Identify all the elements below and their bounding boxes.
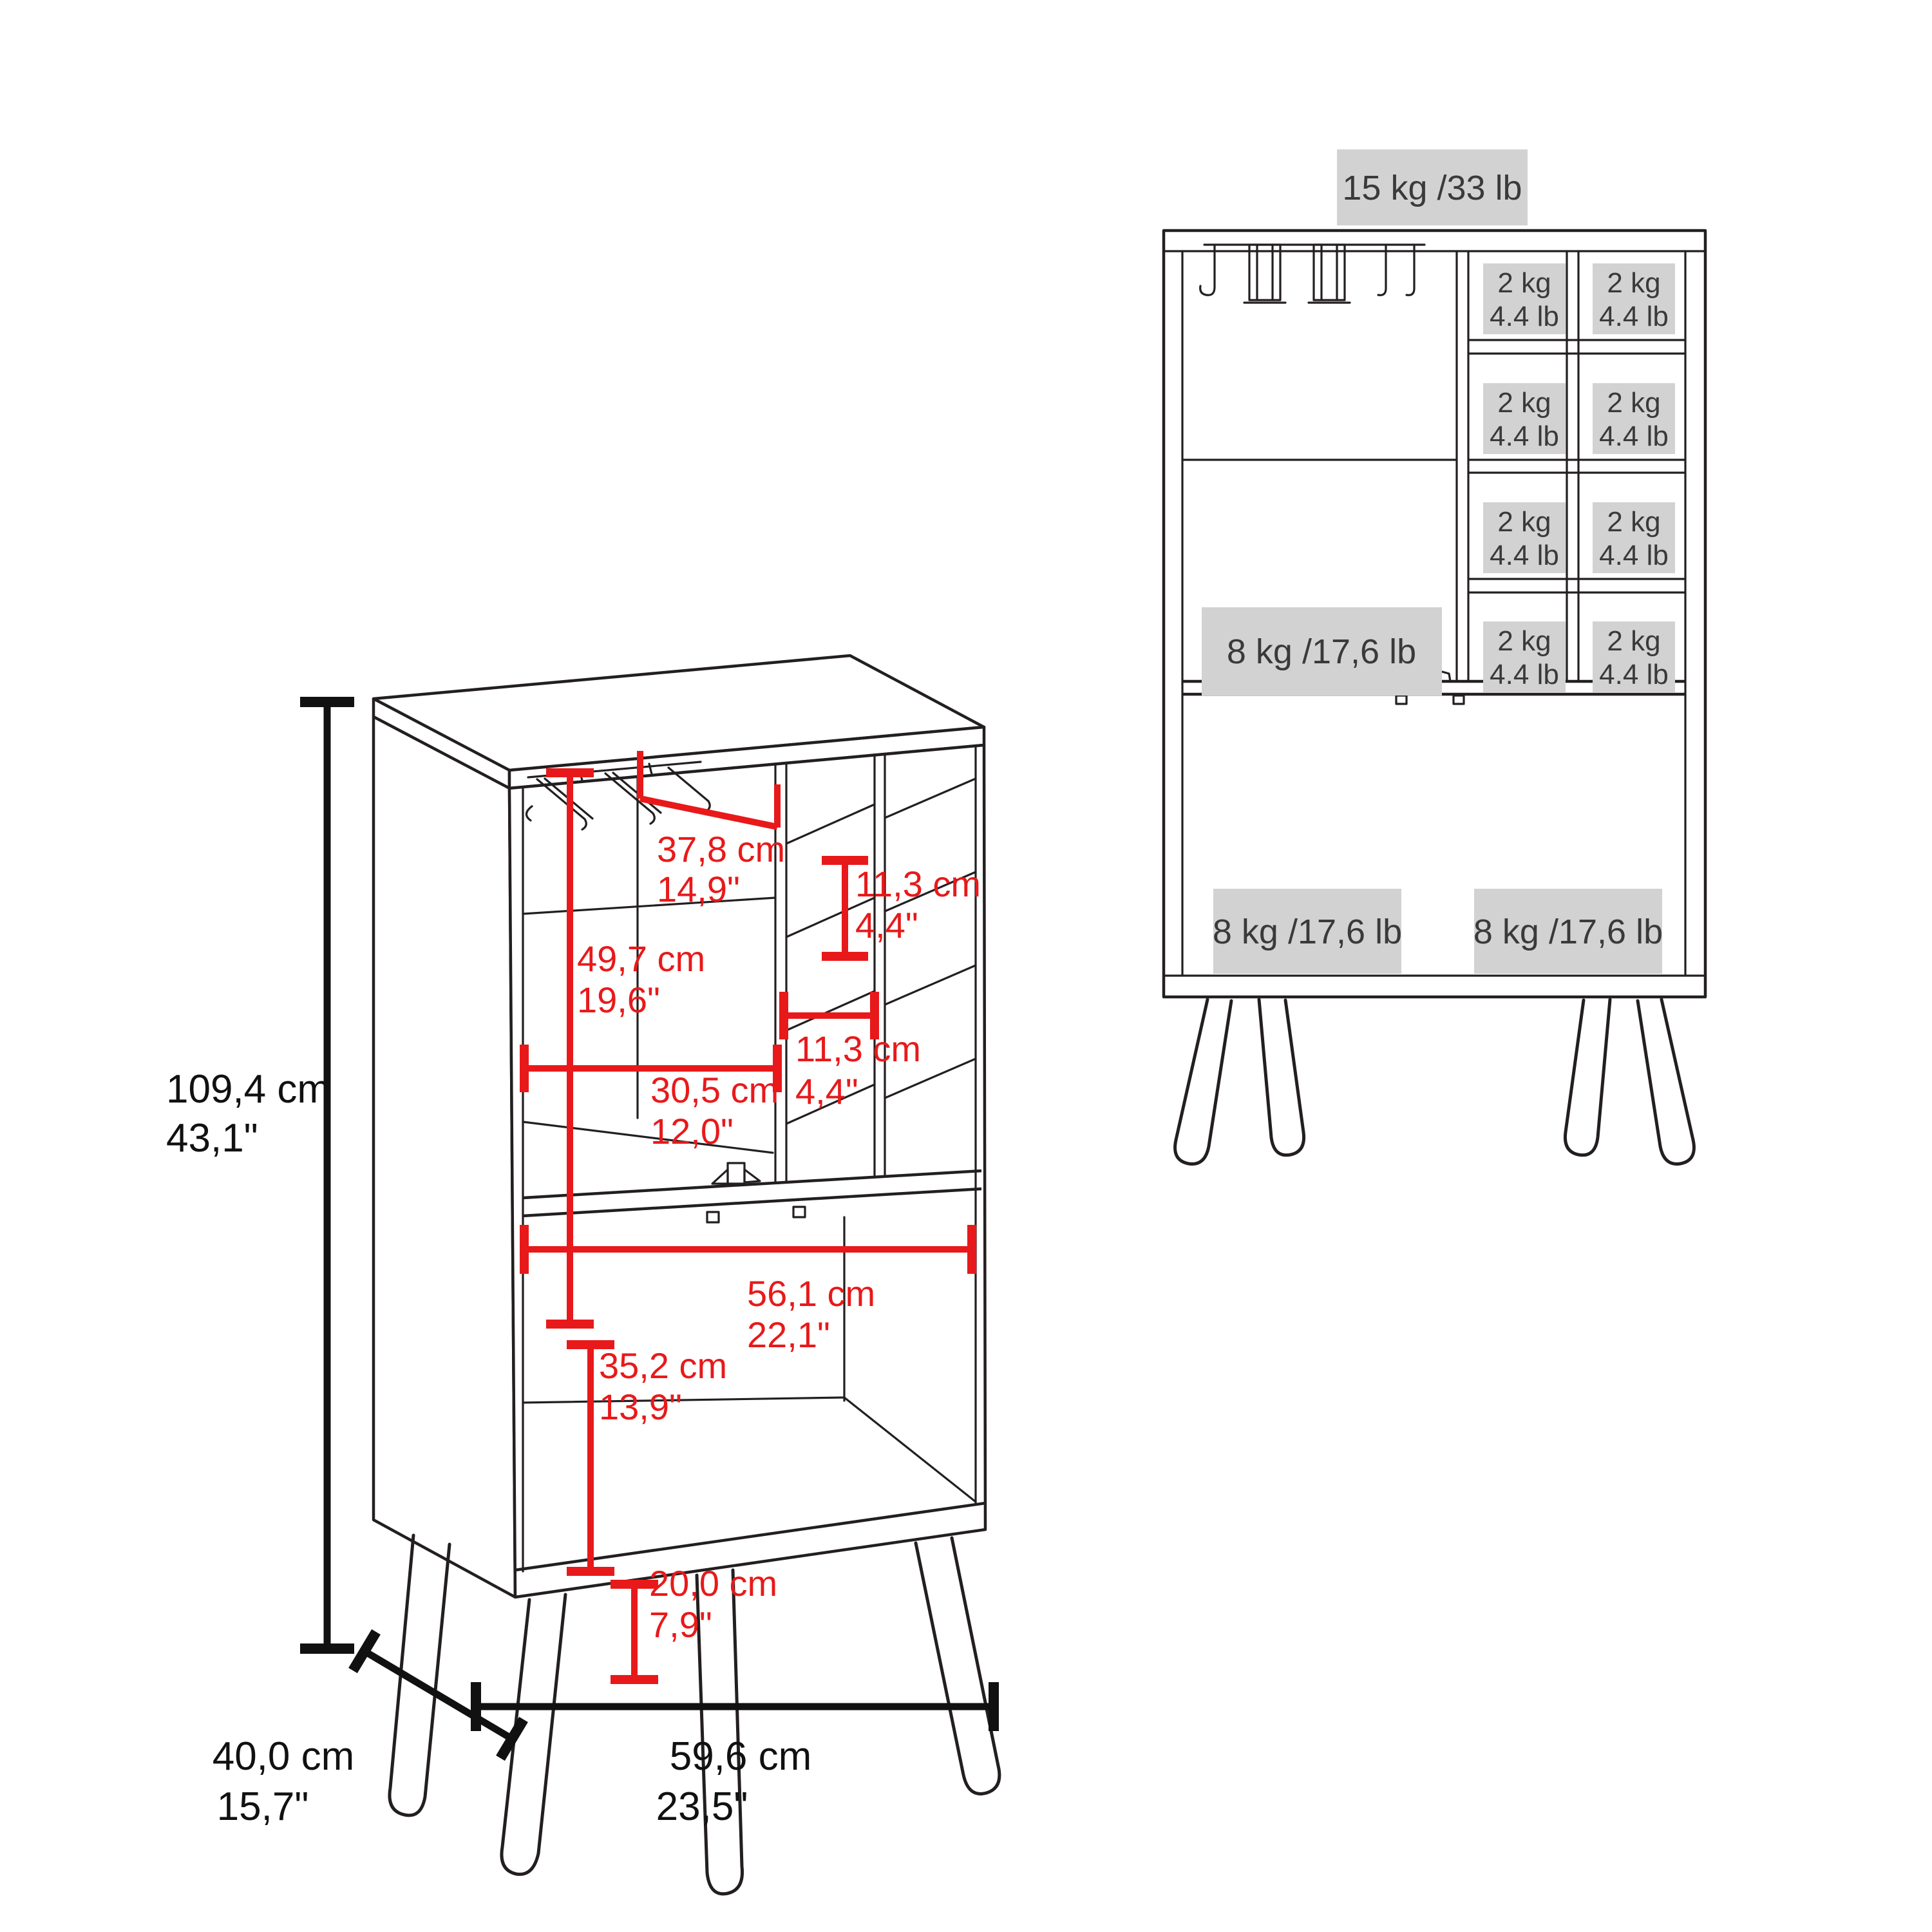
cell-kg: 2 kg (1497, 506, 1551, 538)
cell-label: 2 kg 4.4 lb (1593, 383, 1675, 454)
dim-lower-height-cm: 35,2 cm (599, 1345, 727, 1386)
dim-cubby-height-cm: 11,3 cm (855, 864, 981, 904)
isometric-view: 109,4 cm 43,1" (166, 656, 999, 1894)
cell-label: 2 kg 4.4 lb (1483, 621, 1566, 692)
cell-kg: 2 kg (1607, 387, 1660, 419)
cell-kg: 2 kg (1497, 387, 1551, 419)
cell-kg: 2 kg (1607, 506, 1660, 538)
cell-lb: 4.4 lb (1490, 540, 1559, 571)
leg-right-outer (1638, 999, 1694, 1164)
dim-cubby-width-in: 4,4" (795, 1071, 858, 1112)
shelf-capacity-text: 8 kg /17,6 lb (1227, 632, 1416, 671)
leg-front-right (916, 1538, 999, 1794)
cell-label: 2 kg 4.4 lb (1483, 502, 1566, 573)
shelf-capacity-label: 8 kg /17,6 lb (1202, 607, 1442, 696)
height-dim-in: 43,1" (166, 1116, 258, 1160)
bottom-left-text: 8 kg /17,6 lb (1213, 913, 1402, 951)
dim-leg-height-in: 7,9" (649, 1604, 712, 1645)
cell-kg: 2 kg (1607, 267, 1660, 299)
cell-lb: 4.4 lb (1599, 421, 1669, 452)
cell-label: 2 kg 4.4 lb (1593, 502, 1675, 573)
cell-kg: 2 kg (1497, 625, 1551, 657)
dim-leg-height: 20,0 cm 7,9" (611, 1563, 777, 1680)
leg-left-outer (1175, 999, 1231, 1164)
cell-lb: 4.4 lb (1599, 540, 1669, 571)
dim-cubby-height-in: 4,4" (855, 905, 918, 945)
dim-lower-height-in: 13,9" (599, 1387, 682, 1427)
left-side-panel (374, 717, 515, 1597)
height-dimension: 109,4 cm 43,1" (166, 702, 354, 1649)
width-dim-cm: 59,6 cm (670, 1734, 812, 1779)
dim-upper-height-cm: 49,7 cm (577, 938, 705, 979)
depth-dim-cm: 40,0 cm (213, 1734, 355, 1779)
cell-kg: 2 kg (1497, 267, 1551, 299)
bar-cabinet-diagram: 109,4 cm 43,1" (0, 0, 1932, 1932)
leg-left-inner (1259, 999, 1304, 1155)
assembly-dimension-sheet: { "colors": { "dimension_red": "#e8191a"… (0, 0, 1932, 1932)
depth-dim-in: 15,7" (217, 1785, 309, 1829)
width-dim-in: 23,5" (656, 1785, 748, 1829)
cell-label: 2 kg 4.4 lb (1593, 263, 1675, 334)
dim-upper-height-in: 19,6" (577, 980, 660, 1020)
cell-lb: 4.4 lb (1599, 301, 1669, 332)
top-capacity-text: 15 kg /33 lb (1342, 169, 1522, 207)
cell-lb: 4.4 lb (1490, 301, 1559, 332)
cell-lb: 4.4 lb (1599, 659, 1669, 690)
cell-lb: 4.4 lb (1490, 659, 1559, 690)
front-view: 15 kg /33 lb (1164, 149, 1705, 1164)
cell-label: 2 kg 4.4 lb (1593, 621, 1675, 692)
top-capacity-label: 15 kg /33 lb (1337, 149, 1528, 225)
cell-label: 2 kg 4.4 lb (1483, 263, 1566, 334)
front-hairpin-legs (1175, 999, 1694, 1164)
dim-lower-width-cm: 56,1 cm (747, 1273, 875, 1314)
cell-lb: 4.4 lb (1490, 421, 1559, 452)
dim-upper-width-cm: 30,5 cm (650, 1070, 779, 1110)
dim-lower-width-in: 22,1" (747, 1314, 830, 1355)
cell-kg: 2 kg (1607, 625, 1660, 657)
dim-cubby-width-cm: 11,3 cm (795, 1028, 921, 1069)
bottom-right-text: 8 kg /17,6 lb (1473, 913, 1663, 951)
dim-rack-width-in: 14,9" (657, 869, 740, 909)
dim-rack-width-cm: 37,8 cm (657, 829, 785, 869)
leg-right-inner (1565, 999, 1610, 1155)
width-dimension: 59,6 cm 23,5" (476, 1682, 994, 1829)
depth-dim-cap (353, 1632, 376, 1671)
height-dim-cm: 109,4 cm (166, 1067, 330, 1112)
cell-label: 2 kg 4.4 lb (1483, 383, 1566, 454)
dim-upper-width-in: 12,0" (650, 1111, 734, 1151)
dim-leg-height-cm: 20,0 cm (649, 1563, 777, 1604)
